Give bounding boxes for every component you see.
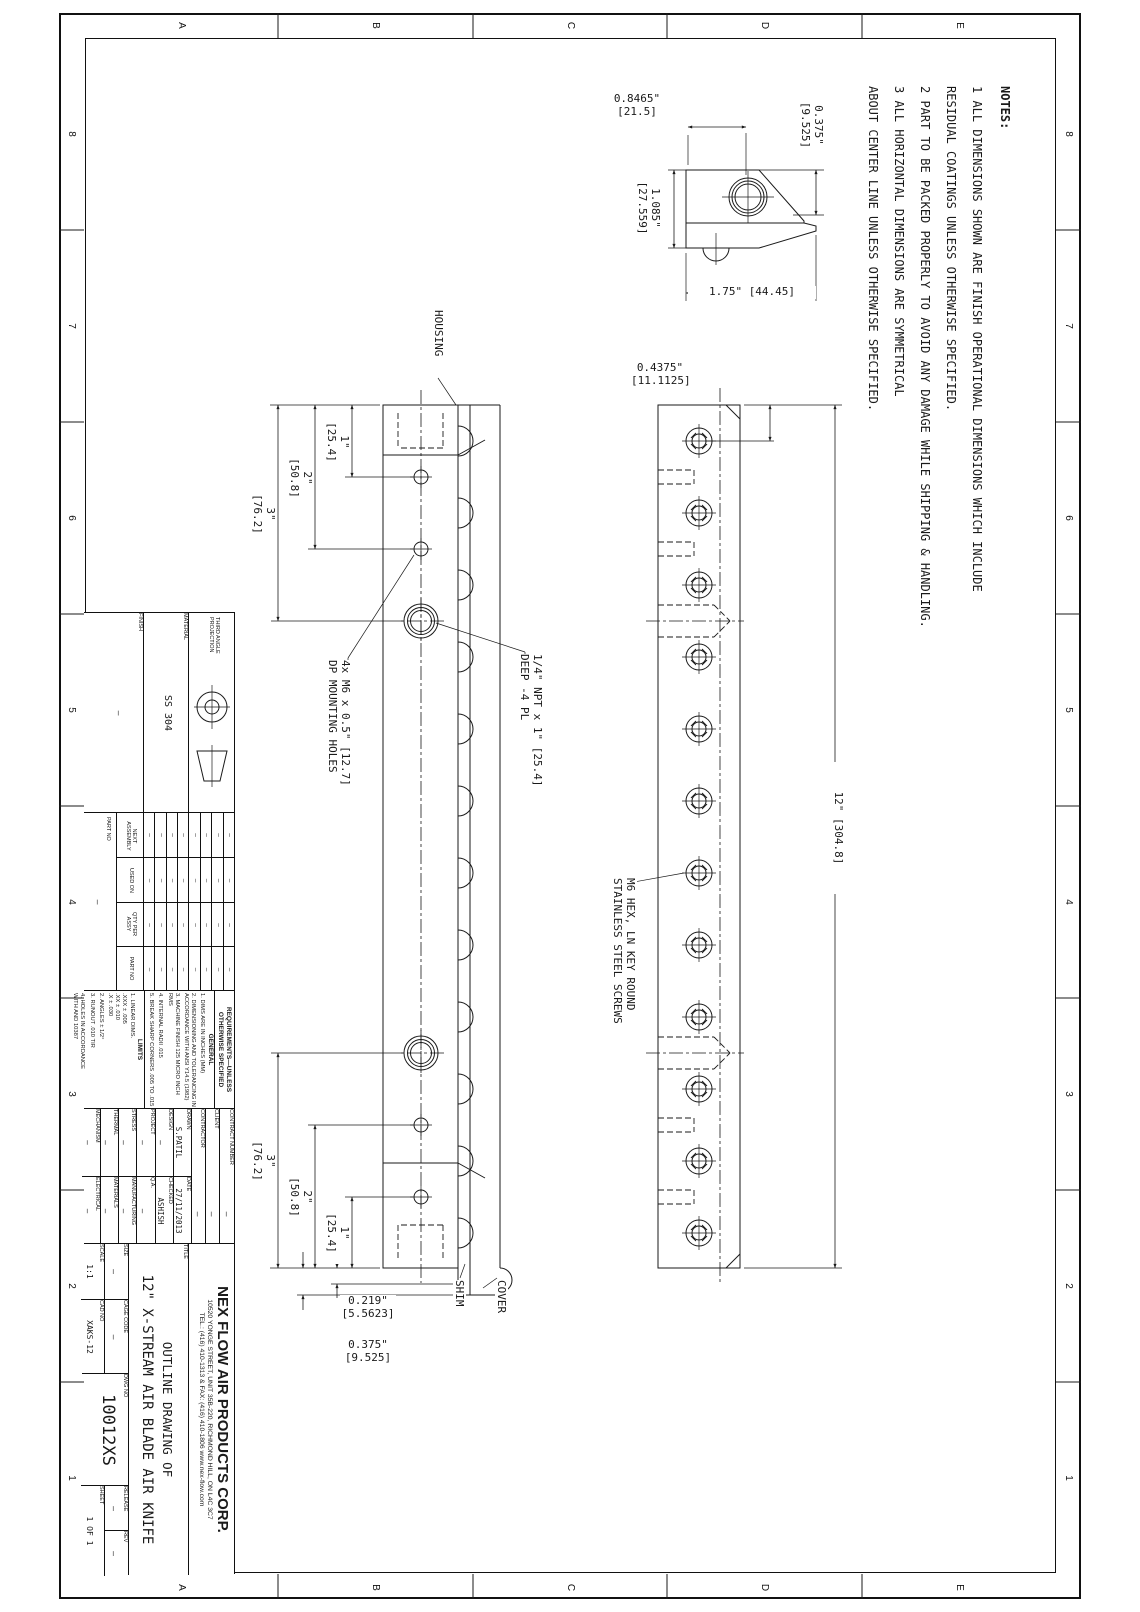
- project-value: —: [138, 1109, 147, 1176]
- zone-number: 7: [1056, 230, 1081, 422]
- used-on-column: ————————: [144, 857, 234, 903]
- rev-value: —: [109, 1531, 118, 1576]
- limit-item: 1. LINEAR DIMS. .XXX ± .005 .XX ± .010 .…: [106, 993, 135, 1108]
- qty-column: ————————: [144, 902, 234, 947]
- finish-value: —: [114, 613, 123, 813]
- housing-label: HOUSING: [432, 310, 445, 356]
- engineering-drawing-page: 8 7 6 5 4 3 2 1 8 7 6 5 4 3 2 1 E D C B …: [0, 0, 1140, 1612]
- zone-letter: D: [667, 1575, 862, 1600]
- notes-body: 1 ALL DIMENSIONS SHOWN ARE FINISH OPERAT…: [860, 86, 990, 628]
- mount-note: 4x M6 x 0.5" [12.7] DP MOUNTING HOLES: [326, 660, 352, 786]
- drawing-sheet: 8 7 6 5 4 3 2 1 8 7 6 5 4 3 2 1 E D C B …: [0, 0, 1140, 1612]
- qa-value: —: [138, 1177, 147, 1245]
- detail-top-dim: 0.375" [9.525]: [796, 96, 824, 154]
- zone-letter: A: [84, 1575, 278, 1600]
- third-angle-symbol: [190, 679, 233, 809]
- zone-number: 6: [1056, 422, 1081, 614]
- screw-note: M6 HEX, LN KEY ROUND STAINLESS STEEL SCR…: [611, 878, 637, 1024]
- next-assembly-column: ————————: [144, 813, 234, 857]
- hole-dim-2-left: 2" [50.8]: [288, 447, 313, 509]
- detail-base-dim: 1.75" [44.45]: [688, 286, 816, 299]
- zone-number: 4: [1056, 806, 1081, 998]
- requirements-block: REQUIREMENTS—UNLESS OTHERWISE SPECIFIED …: [84, 990, 235, 1108]
- hole-dim-3-right: 3" [76.2]: [251, 1130, 276, 1192]
- general-label: GENERAL: [207, 991, 215, 1108]
- top-view-linework: [560, 350, 870, 1340]
- finish-label: FINISH: [137, 613, 143, 631]
- part-no-value: —: [93, 813, 102, 991]
- electrical-label: ELECTRICAL: [94, 1177, 100, 1211]
- materials-value: —: [101, 1177, 110, 1245]
- release-value: —: [109, 1486, 118, 1531]
- cross-section-view: 0.8465" [21.5] 1.085" [27.559] 0.375" [9…: [588, 75, 828, 305]
- design-value: —: [156, 1109, 165, 1176]
- third-angle-label: THIRD ANGLE PROJECTION: [208, 617, 220, 654]
- manufacturing-value: —: [119, 1177, 128, 1245]
- checked-value: ASHISH: [156, 1177, 165, 1245]
- thermal-label: THERMAL: [112, 1109, 118, 1135]
- dwg-no-label: DWG NO: [122, 1374, 128, 1397]
- contract-value: —: [222, 1199, 231, 1229]
- stress-value: —: [119, 1109, 128, 1176]
- size-label: SIZE: [122, 1244, 128, 1256]
- mechanism-value: —: [83, 1109, 92, 1176]
- zone-letter: C: [473, 13, 667, 38]
- limit-item: 3. RUNOUT .010 TIR: [87, 993, 94, 1108]
- shim-dim: 0.219" [5.5623]: [340, 1295, 396, 1323]
- title-block: NEX FLOW AIR PRODUCTS CORP. 10520 YONGE …: [84, 1243, 235, 1574]
- zone-letter: D: [667, 13, 862, 38]
- drawn-label: DRAWN: [185, 1109, 191, 1130]
- date-value: 27/11/2013: [174, 1177, 183, 1245]
- contractor-value: —: [193, 1199, 202, 1229]
- size-value: —: [109, 1244, 118, 1299]
- detail-width-dim: 0.8465" [21.5]: [594, 93, 680, 118]
- design-label: DESIGN: [167, 1109, 173, 1130]
- cover-dim: 0.375" [9.525]: [340, 1339, 396, 1367]
- qa-label: Q.A.: [149, 1177, 155, 1188]
- manufacturing-label: MANUFACTURING: [130, 1177, 136, 1225]
- zone-number: 1: [1056, 1382, 1081, 1574]
- signoff-block: CONTRACT NUMBER — CLIENT — CONTRACTOR — …: [84, 1108, 235, 1243]
- date-label: DATE: [185, 1177, 191, 1191]
- col-header: QTY PER ASSY: [125, 903, 137, 945]
- contractor-label: CONTRACTOR: [199, 1109, 205, 1148]
- zone-letter: B: [278, 1575, 473, 1600]
- zone-number: 5: [59, 614, 84, 806]
- limit-item: 2. ANGLES ± 1/2°: [97, 993, 104, 1108]
- thermal-value: —: [101, 1109, 110, 1176]
- company-contact: TEL.: (416) 410-1313 & FAX: (416) 410-18…: [197, 1244, 205, 1575]
- detail-height-dim: 1.085" [27.559]: [633, 177, 661, 239]
- limits-label: LIMITS: [136, 991, 146, 1108]
- zone-letter: A: [84, 13, 278, 38]
- requirement-item: 4. INTERNAL RADII .015: [156, 993, 163, 1108]
- mechanism-label: MECHANISM: [94, 1109, 100, 1143]
- zone-letter: E: [862, 13, 1056, 38]
- drawing-title-line2: 12" X-STREAM AIR BLADE AIR KNIFE: [139, 1244, 155, 1575]
- dwg-no-value: 10012XS: [103, 1374, 112, 1486]
- zone-letter: C: [473, 1575, 667, 1600]
- end-spacing-dim: 0.4375" [11.1125]: [630, 362, 690, 390]
- release-label: RELEASE: [122, 1486, 128, 1511]
- requirement-item: 1. DIMS ARE IN INCHES (MM): [198, 993, 205, 1108]
- part-no-label: PART NO: [105, 817, 111, 841]
- zone-letter: B: [278, 13, 473, 38]
- application-block: ———————— ———————— ———————— ———————— NEXT…: [84, 812, 235, 990]
- cad-no-value: XAKS-12: [85, 1300, 94, 1374]
- sheet-value: 1 OF 1: [85, 1486, 94, 1576]
- zone-number: 5: [1056, 614, 1081, 806]
- zone-number: 2: [1056, 1190, 1081, 1382]
- limit-item: 4. HOLES IN ACCORDANCE WITH AND 10387: [71, 993, 85, 1108]
- scale-label: SCALE: [98, 1244, 104, 1262]
- company-address: 10520 YONGE STREET, UNIT 35B-220, RICHMO…: [205, 1244, 213, 1575]
- hole-dim-3-left: 3" [76.2]: [251, 483, 276, 545]
- zone-number: 6: [59, 422, 84, 614]
- project-label: PROJECT: [149, 1109, 155, 1135]
- drawn-value: S.PATIL: [174, 1109, 183, 1176]
- requirement-item: 2. DIMENSIONING AND TOLERANCING IN ACCOR…: [182, 993, 196, 1108]
- checked-label: CHECKED: [167, 1177, 173, 1204]
- col-header: NEXT ASSEMBLY: [125, 815, 137, 857]
- npt-note: 1/4" NPT x 1" [25.4] DEEP -4 PL: [518, 654, 544, 786]
- zone-number: 8: [1056, 38, 1081, 230]
- material-label: MATERIAL: [182, 613, 188, 640]
- client-value: —: [207, 1199, 216, 1229]
- part-no-column: ————————: [144, 946, 234, 992]
- drawing-title-line1: OUTLINE DRAWING OF: [160, 1244, 175, 1575]
- requirement-item: 5. BREAK SHARP CORNERS .005 TO .015: [147, 993, 154, 1108]
- hole-dim-2-right: 2" [50.8]: [288, 1166, 313, 1228]
- cad-no-label: CAD NO: [98, 1300, 104, 1321]
- notes-heading: NOTES:: [992, 86, 1018, 129]
- cage-code-label: CAGE CODE: [122, 1300, 128, 1333]
- sheet-label: SHEET: [98, 1486, 104, 1504]
- zone-number: 3: [1056, 998, 1081, 1190]
- shim-label: SHIM: [453, 1280, 466, 1307]
- requirement-item: 3. MACHINE FINISH 125 MICRO INCH RMS: [165, 993, 179, 1108]
- materials-label: MATERIALS: [112, 1177, 118, 1208]
- zone-letter: E: [862, 1575, 1056, 1600]
- company-name: NEX FLOW AIR PRODUCTS CORP.: [213, 1244, 234, 1575]
- col-header: USED ON: [128, 859, 134, 902]
- client-label: CLIENT: [213, 1109, 219, 1129]
- hole-dim-1-right: 1" [25.4]: [325, 1202, 350, 1264]
- length-dim: 12" [304.8]: [832, 762, 845, 894]
- zone-number: 7: [59, 230, 84, 422]
- rev-label: REV: [122, 1531, 128, 1542]
- zone-number: 4: [59, 806, 84, 998]
- projection-material-block: THIRD ANGLE PROJECTION MATERIAL SS 304 F…: [84, 612, 235, 812]
- material-value: SS 304: [163, 613, 172, 813]
- cage-code-value: —: [109, 1300, 118, 1374]
- col-header: PART NO: [128, 947, 134, 990]
- cover-label: COVER: [495, 1280, 508, 1313]
- electrical-value: —: [83, 1177, 92, 1245]
- title-label: TITLE: [182, 1244, 188, 1259]
- scale-value: 1:1: [85, 1244, 94, 1299]
- zone-number: 8: [59, 38, 84, 230]
- requirements-heading: REQUIREMENTS—UNLESS OTHERWISE SPECIFIED: [214, 991, 234, 1108]
- stress-label: STRESS: [130, 1109, 136, 1131]
- hole-dim-1-left: 1" [25.4]: [325, 411, 350, 473]
- contract-label: CONTRACT NUMBER: [228, 1109, 234, 1165]
